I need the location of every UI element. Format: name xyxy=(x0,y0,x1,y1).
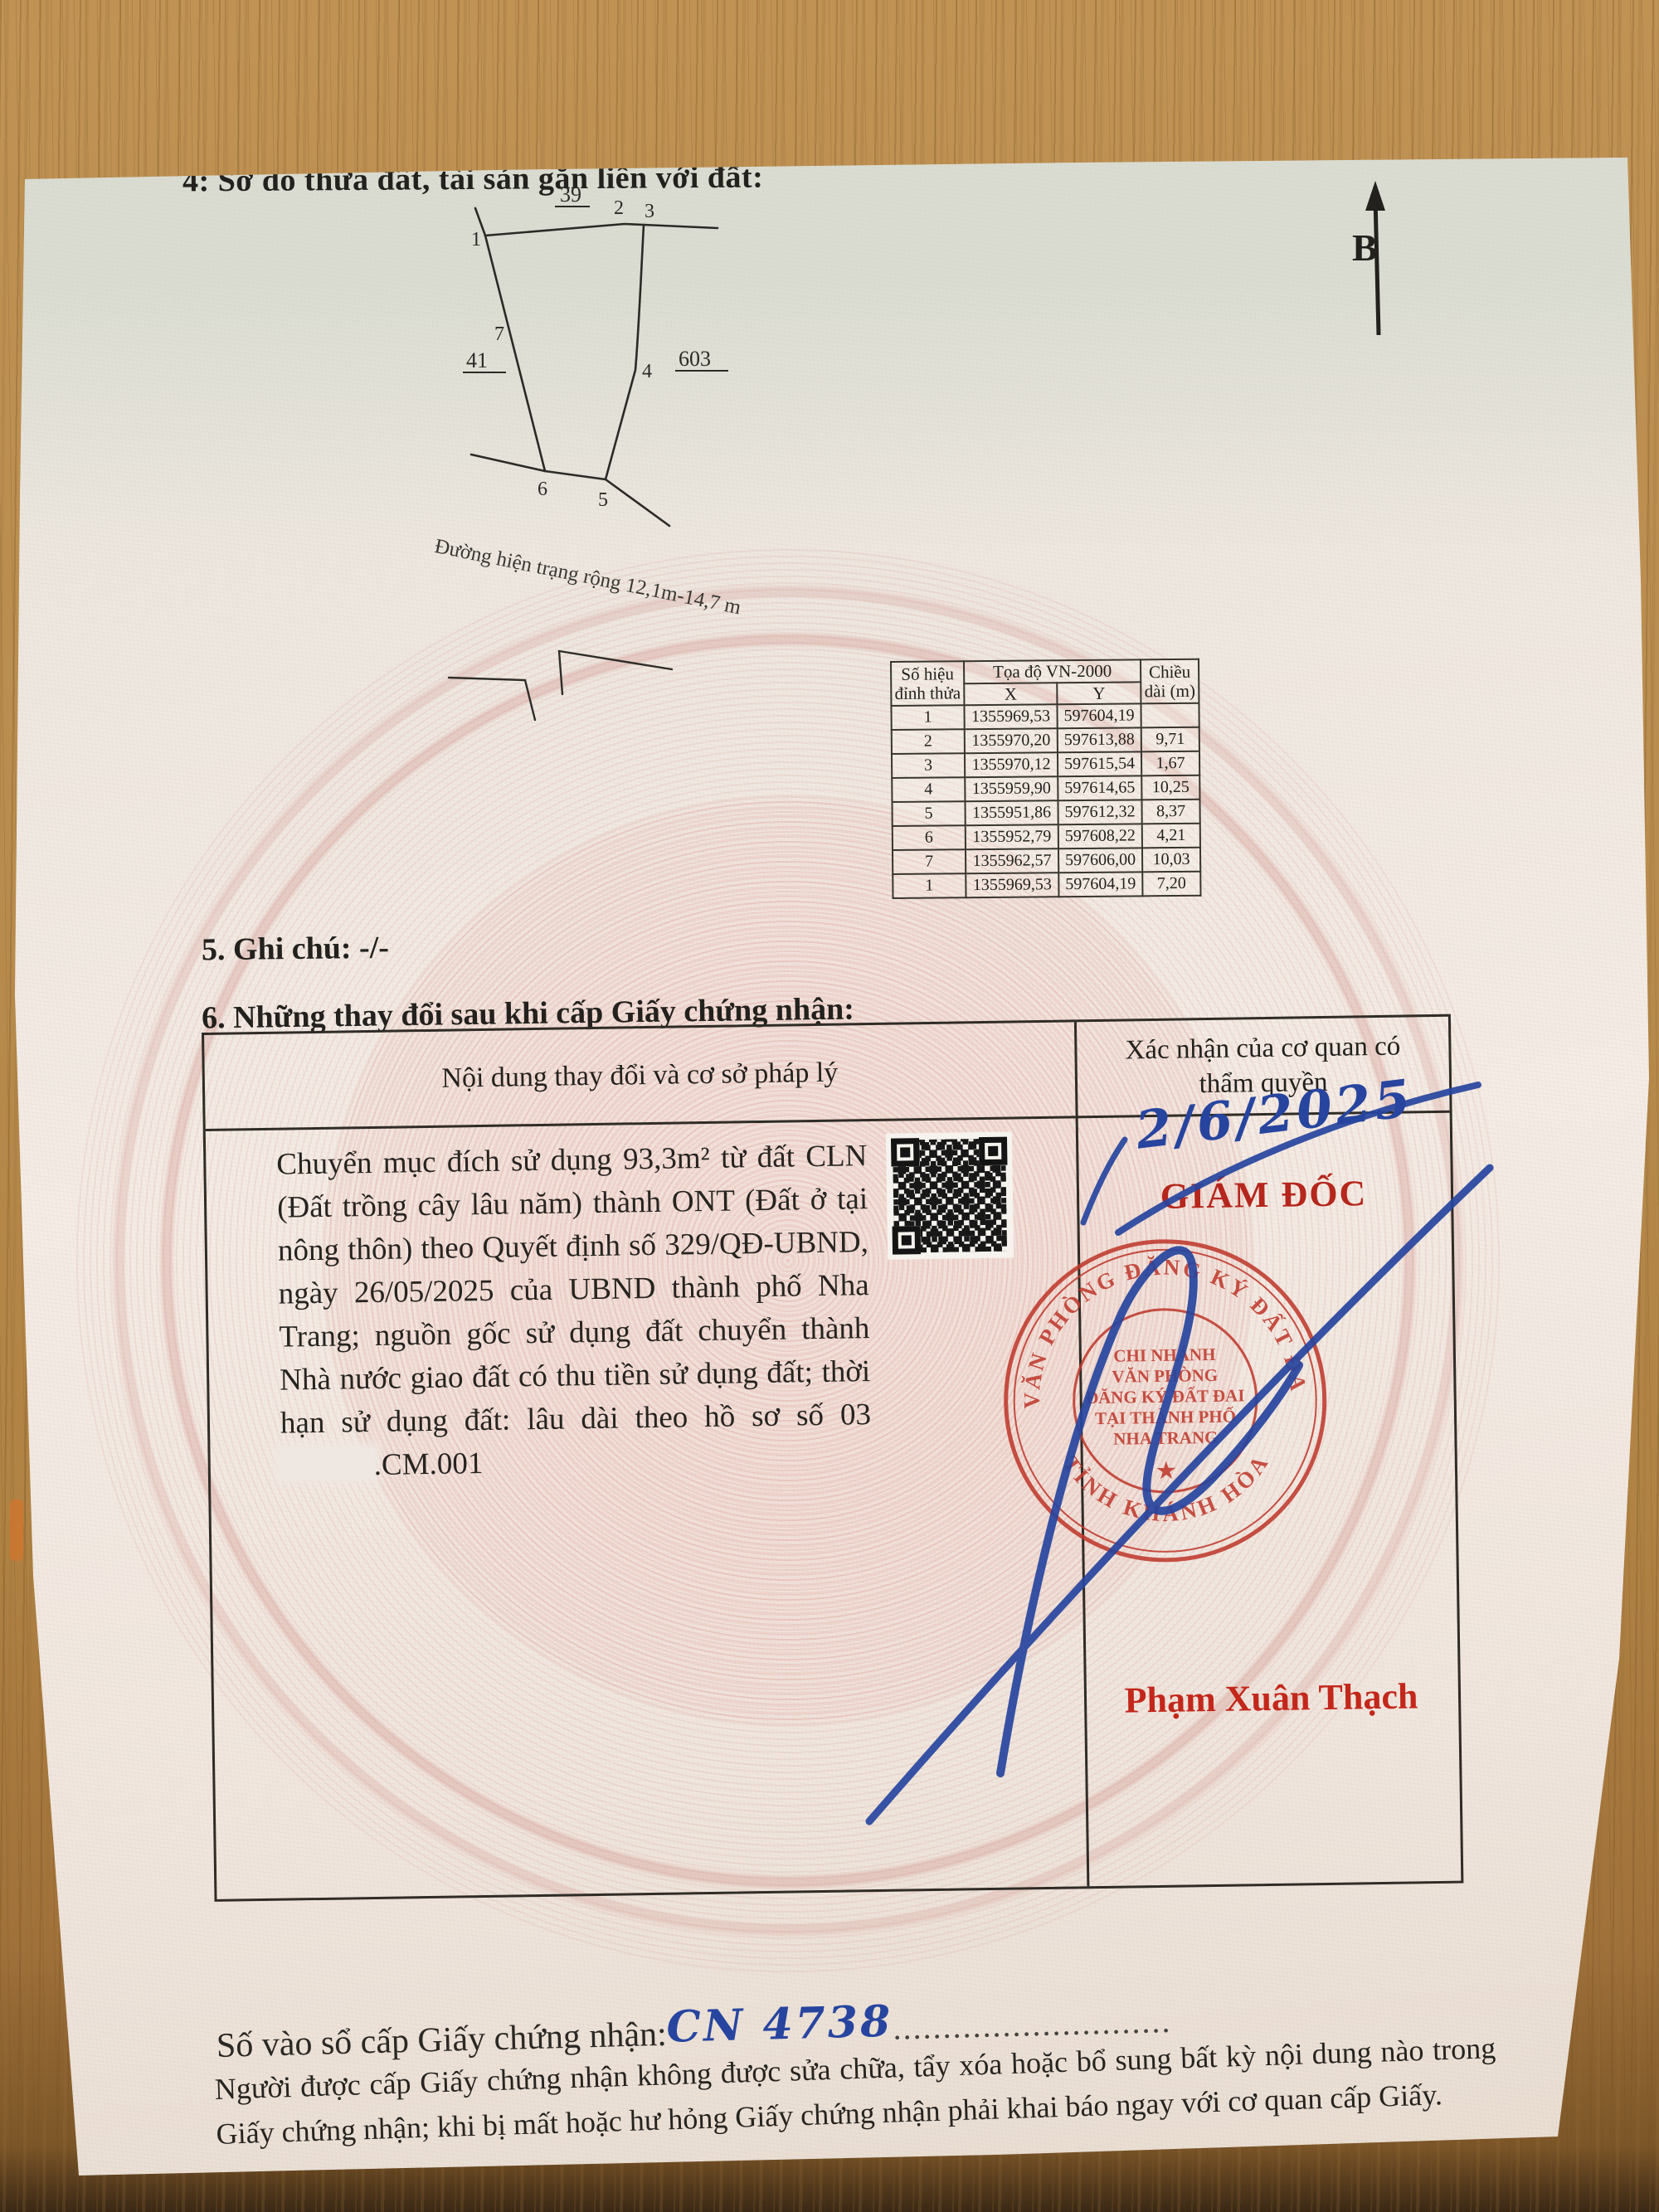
change-table-col1-header: Nội dung thay đổi và cơ sở pháp lý xyxy=(204,1022,1076,1129)
vertex-cell: 7 xyxy=(893,850,966,875)
vertex-label-1: 1 xyxy=(471,229,481,250)
stamp-star-icon: ★ xyxy=(1156,1459,1176,1483)
vertex-label-6: 6 xyxy=(538,479,547,500)
vertex-label-4: 4 xyxy=(642,361,652,382)
stamp-inner-line: VĂN PHÒNG xyxy=(1112,1365,1218,1387)
length-cell: 1,67 xyxy=(1141,751,1199,776)
x-cell: 1355952,79 xyxy=(966,825,1058,850)
vertex-cell: 1 xyxy=(893,874,966,899)
table-row: 1 1355969,53 597604,19 7,20 xyxy=(893,872,1200,898)
approval-title: GIÁM ĐỐC xyxy=(1077,1171,1452,1219)
table-row: 5 1355951,86 597612,32 8,37 xyxy=(892,800,1199,826)
x-cell: 1355970,20 xyxy=(965,729,1058,754)
left-edge-mark xyxy=(10,1500,23,1561)
adjacent-parcel-39: 39 xyxy=(560,182,581,207)
official-stamp: VĂN PHÒNG ĐĂNG KÝ ĐẤT ĐAI TỈNH KHÁNH HÒA… xyxy=(997,1232,1334,1569)
registry-value-handwritten: CN 4738 xyxy=(666,1996,893,2053)
coord-header-length: Chiều dài (m) xyxy=(1141,659,1199,704)
length-cell: 4,21 xyxy=(1142,824,1200,848)
change-content: Chuyển mục đích sử dụng 93,3m² từ đất CL… xyxy=(276,1135,872,1489)
vertex-cell: 5 xyxy=(892,802,965,827)
stamp-inner-line: ĐĂNG KÝ ĐẤT ĐAI xyxy=(1086,1385,1245,1407)
signer-name: Phạm Xuân Thạch xyxy=(1084,1675,1459,1723)
redaction-gap xyxy=(280,1450,373,1476)
vertex-cell: 6 xyxy=(893,826,966,851)
road-boundary-line xyxy=(471,455,669,526)
coord-header-y: Y xyxy=(1057,682,1141,705)
approval-date-handwritten: 2/6/2025 xyxy=(1098,1063,1452,1165)
y-cell: 597604,19 xyxy=(1058,873,1142,897)
parcel-edge-left xyxy=(485,236,545,471)
adjacent-parcel-41: 41 xyxy=(466,348,488,372)
adjacent-parcel-603: 603 xyxy=(679,347,711,371)
vertex-cell: 2 xyxy=(892,730,965,755)
x-cell: 1355962,57 xyxy=(966,849,1058,874)
section5-note: 5. Ghi chú: -/- xyxy=(202,930,389,969)
vertex-cell: 3 xyxy=(892,754,965,779)
qr-finder-icon xyxy=(893,1226,922,1255)
edge-label-7: 7 xyxy=(494,323,504,345)
table-row: 2 1355970,20 597613,88 9,71 xyxy=(892,727,1199,754)
stamp-inner-line: TẠI THÀNH PHỐ xyxy=(1095,1407,1236,1429)
coord-header-vn2000: Tọa độ VN-2000 xyxy=(964,659,1141,683)
north-arrow: B xyxy=(1326,176,1433,342)
road-edge-marks xyxy=(431,647,697,746)
length-cell: 10,25 xyxy=(1141,775,1199,800)
y-cell: 597615,54 xyxy=(1058,752,1141,777)
photo-of-land-certificate: 4: Sơ đồ thửa đất, tài sản gắn liền với … xyxy=(0,0,1659,2212)
table-row: 3 1355970,12 597615,54 1,67 xyxy=(892,751,1199,778)
certificate-page: 4: Sơ đồ thửa đất, tài sản gắn liền với … xyxy=(0,0,1659,2212)
north-label: B xyxy=(1352,226,1378,269)
stamp-inner-line: NHA TRANG xyxy=(1113,1427,1219,1449)
change-content-text: Chuyển mục đích sử dụng 93,3m² từ đất CL… xyxy=(276,1139,871,1441)
coord-header-vertex: Số hiệu đỉnh thửa xyxy=(891,661,964,706)
x-cell: 1355951,86 xyxy=(965,801,1058,826)
qr-finder-icon xyxy=(979,1137,1008,1166)
vertex-label-5: 5 xyxy=(598,489,608,511)
x-cell: 1355959,90 xyxy=(965,777,1058,802)
table-row: 6 1355952,79 597608,22 4,21 xyxy=(893,824,1200,850)
vertex-cell: 4 xyxy=(892,778,965,803)
change-table: Nội dung thay đổi và cơ sở pháp lý Xác n… xyxy=(202,1014,1463,1902)
length-cell: 8,37 xyxy=(1141,800,1199,824)
boundary-extension-right xyxy=(644,225,718,228)
y-cell: 597604,19 xyxy=(1057,704,1141,729)
coordinate-table: Số hiệu đỉnh thửa Tọa độ VN-2000 Chiều d… xyxy=(890,659,1201,900)
qr-code xyxy=(886,1132,1014,1260)
parcel-edge-top xyxy=(485,224,644,236)
vertex-label-3: 3 xyxy=(645,201,654,222)
vertex-cell: 1 xyxy=(891,706,964,731)
x-cell: 1355970,12 xyxy=(965,753,1058,778)
y-cell: 597613,88 xyxy=(1058,728,1141,753)
vertex-label-2: 2 xyxy=(614,197,624,219)
length-cell xyxy=(1141,703,1199,728)
parcel-edge-right xyxy=(606,225,644,479)
change-content-file-code: .CM.001 xyxy=(373,1446,483,1482)
north-arrowhead-icon xyxy=(1365,181,1385,211)
y-cell: 597606,00 xyxy=(1058,848,1142,873)
length-cell: 7,20 xyxy=(1142,872,1200,897)
length-cell: 10,03 xyxy=(1142,848,1200,873)
coord-header-x: X xyxy=(964,683,1057,706)
y-cell: 597608,22 xyxy=(1058,824,1142,849)
table-row: 4 1355959,90 597614,65 10,25 xyxy=(892,775,1199,802)
y-cell: 597614,65 xyxy=(1058,776,1141,801)
length-cell: 9,71 xyxy=(1141,727,1199,752)
table-row: 1 1355969,53 597604,19 xyxy=(891,703,1199,730)
qr-finder-icon xyxy=(891,1138,920,1167)
y-cell: 597612,32 xyxy=(1058,800,1141,825)
x-cell: 1355969,53 xyxy=(966,873,1058,898)
table-row: 7 1355962,57 597606,00 10,03 xyxy=(893,848,1200,874)
x-cell: 1355969,53 xyxy=(964,705,1057,730)
stamp-inner-line: CHI NHÁNH xyxy=(1113,1344,1215,1366)
parcel-diagram: 1 2 3 4 5 6 7 39 41 603 xyxy=(431,181,813,546)
